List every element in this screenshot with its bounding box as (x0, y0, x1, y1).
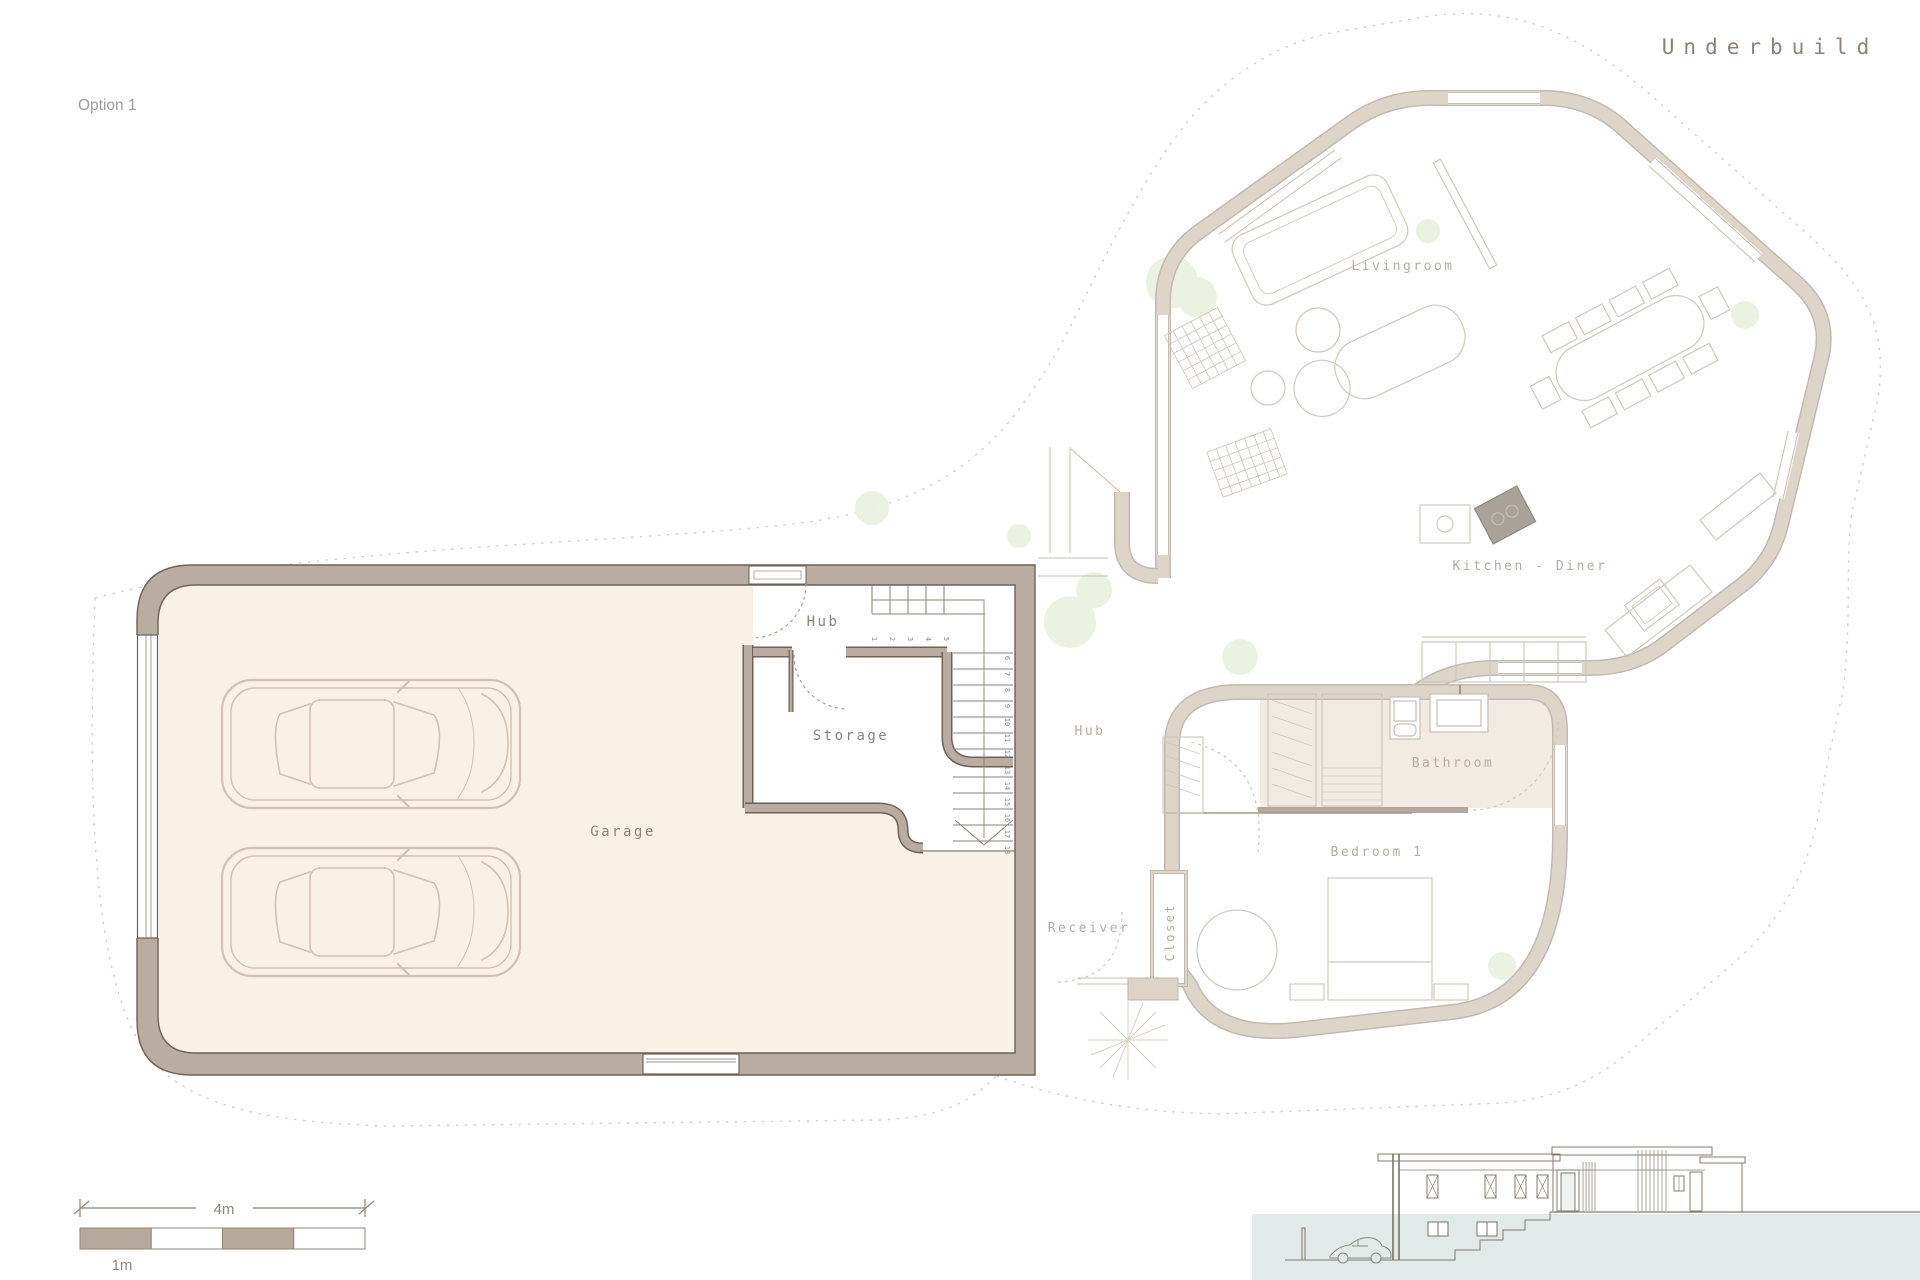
palm-plant (1088, 1000, 1168, 1080)
scale-bar: 4m 1m (74, 1199, 374, 1274)
label-garage: Garage (590, 824, 656, 840)
garage-bottom-window (643, 1054, 739, 1074)
svg-text:7: 7 (1003, 672, 1011, 676)
label-hub-lower: Hub (807, 614, 840, 630)
svg-text:18: 18 (1003, 846, 1011, 854)
svg-text:8: 8 (1003, 688, 1011, 692)
upper-hub-walls (1038, 447, 1158, 576)
svg-text:17: 17 (1003, 830, 1011, 838)
label-bedroom: Bedroom 1 (1331, 845, 1424, 860)
label-kitchen: Kitchen - Diner (1453, 559, 1608, 574)
label-closet: Closet (1163, 903, 1177, 961)
svg-text:16: 16 (1003, 814, 1011, 822)
label-livingroom: Livingroom (1351, 259, 1454, 274)
svg-text:11: 11 (1003, 734, 1011, 742)
svg-text:15: 15 (1003, 798, 1011, 806)
elevation-ground-fill (1252, 1214, 1920, 1280)
svg-text:2: 2 (888, 637, 896, 641)
scale-bar-segments (80, 1228, 365, 1249)
elevation-drawing (1252, 1147, 1920, 1280)
dining-set (1512, 252, 1748, 443)
svg-text:14: 14 (1003, 782, 1011, 790)
svg-text:10: 10 (1003, 718, 1011, 726)
elevation-windows (1427, 1175, 1548, 1198)
svg-text:3: 3 (906, 637, 914, 641)
scale-total-label: 4m (214, 1201, 235, 1218)
label-bathroom: Bathroom (1412, 756, 1495, 771)
label-hub-upper: Hub (1075, 724, 1106, 739)
svg-text:9: 9 (1003, 704, 1011, 708)
svg-text:4: 4 (924, 637, 932, 641)
scale-unit-label: 1m (112, 1257, 133, 1274)
option-label: Option 1 (78, 97, 137, 114)
label-receiver: Receiver (1048, 921, 1131, 936)
svg-text:6: 6 (1003, 656, 1011, 660)
hub-entry-door (749, 566, 806, 584)
lower-floor-plan: 1 2 3 4 5 6 7 8 9 10 11 12 13 14 15 16 1… (136, 565, 1035, 1075)
livingroom-furniture (1164, 159, 1496, 497)
livingroom-windows (1158, 93, 1798, 674)
garage-left-window (136, 635, 159, 938)
page-title: Underbuild (1662, 35, 1878, 59)
floorplan-canvas: 1 2 3 4 5 6 7 8 9 10 11 12 13 14 15 16 1… (0, 0, 1920, 1280)
livingroom-walls (1163, 98, 1824, 700)
svg-text:5: 5 (942, 637, 950, 641)
svg-text:12: 12 (1003, 750, 1011, 758)
svg-text:1: 1 (870, 637, 878, 641)
label-storage: Storage (813, 728, 890, 744)
kitchen-fittings (1420, 473, 1776, 682)
svg-text:13: 13 (1003, 766, 1011, 774)
